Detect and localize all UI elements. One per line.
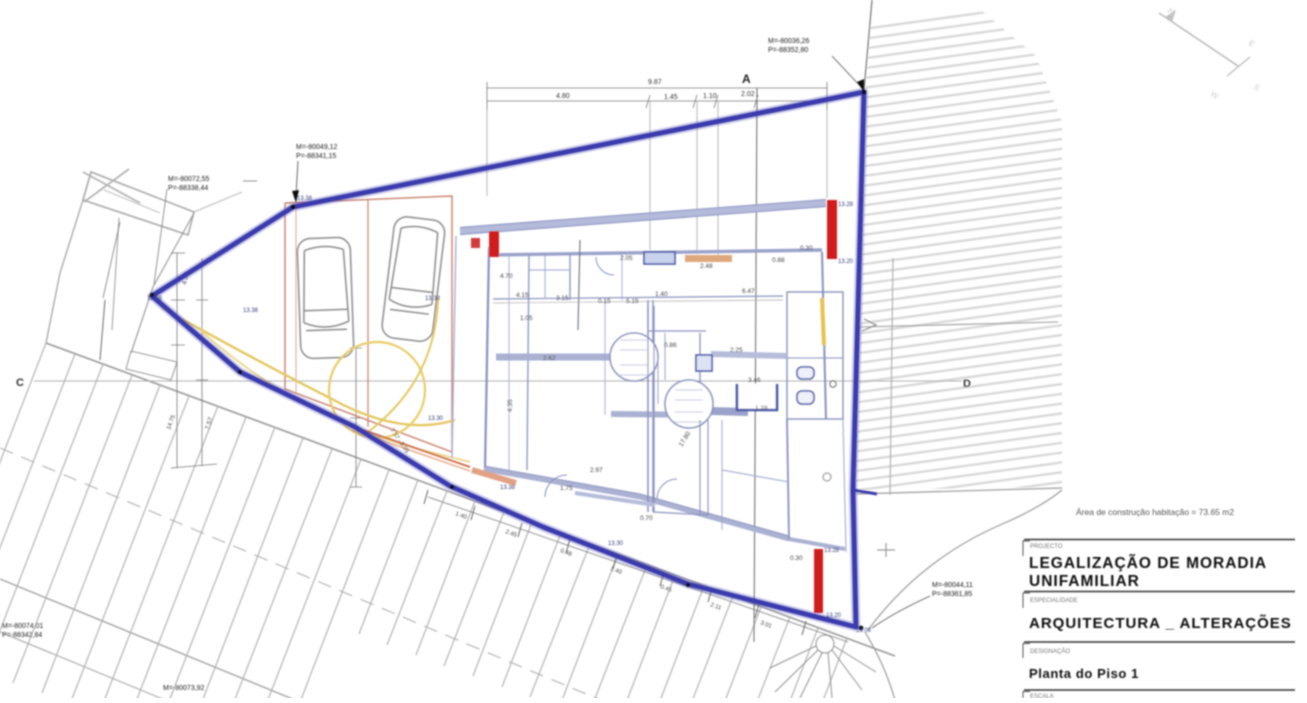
svg-text:M=-80036,26: M=-80036,26 bbox=[768, 38, 810, 45]
svg-text:13.30: 13.30 bbox=[428, 416, 444, 422]
svg-text:0.88: 0.88 bbox=[772, 257, 785, 264]
svg-text:UNIFAMILIAR: UNIFAMILIAR bbox=[1029, 573, 1140, 590]
svg-text:2.97: 2.97 bbox=[590, 467, 603, 474]
svg-text:1.75: 1.75 bbox=[560, 485, 573, 492]
svg-text:6.47: 6.47 bbox=[742, 288, 755, 295]
svg-text:A: A bbox=[742, 72, 751, 86]
svg-text:2.02: 2.02 bbox=[741, 91, 755, 98]
svg-text:0.86: 0.86 bbox=[664, 342, 677, 349]
svg-text:0.30: 0.30 bbox=[800, 245, 813, 252]
svg-text:0.15: 0.15 bbox=[598, 298, 611, 305]
svg-text:13.08: 13.08 bbox=[856, 628, 872, 634]
svg-text:ESCALA: ESCALA bbox=[1030, 694, 1054, 698]
svg-text:13.20: 13.20 bbox=[826, 613, 842, 619]
svg-text:3.46: 3.46 bbox=[748, 377, 761, 384]
svg-text:P=-88361,85: P=-88361,85 bbox=[932, 591, 972, 598]
svg-text:2.62: 2.62 bbox=[543, 355, 556, 362]
svg-text:1.45: 1.45 bbox=[664, 94, 678, 101]
svg-text:3.15: 3.15 bbox=[556, 295, 569, 302]
svg-text:13.28: 13.28 bbox=[838, 202, 854, 208]
svg-text:DESIGNAÇÃO: DESIGNAÇÃO bbox=[1030, 648, 1070, 655]
svg-text:P=-88338,44: P=-88338,44 bbox=[168, 185, 208, 192]
svg-text:Área de construção habitação: Área de construção habitação = 73.65 m2 bbox=[1076, 507, 1234, 517]
svg-text:1.28: 1.28 bbox=[755, 405, 768, 412]
svg-text:LEGALIZAÇÃO DE MORADIA: LEGALIZAÇÃO DE MORADIA bbox=[1029, 554, 1267, 572]
svg-text:D: D bbox=[963, 378, 971, 390]
svg-text:13.28: 13.28 bbox=[824, 548, 840, 554]
svg-text:5.15: 5.15 bbox=[626, 298, 639, 305]
svg-text:13.20: 13.20 bbox=[838, 259, 854, 265]
svg-text:13.08: 13.08 bbox=[147, 296, 163, 302]
svg-text:M=-80073,92: M=-80073,92 bbox=[163, 685, 205, 692]
svg-text:Planta do Piso 1: Planta do Piso 1 bbox=[1029, 666, 1139, 681]
svg-text:ARQUITECTURA _ ALTERAÇÕES: ARQUITECTURA _ ALTERAÇÕES bbox=[1029, 614, 1292, 632]
svg-text:1.05: 1.05 bbox=[520, 315, 533, 322]
svg-text:1.10: 1.10 bbox=[703, 93, 717, 100]
svg-text:4.15: 4.15 bbox=[516, 292, 529, 299]
svg-text:C: C bbox=[16, 377, 24, 389]
svg-text:0.70: 0.70 bbox=[640, 515, 653, 522]
svg-text:13.38: 13.38 bbox=[297, 196, 313, 202]
svg-text:9.87: 9.87 bbox=[648, 79, 662, 86]
svg-text:PROJECTO: PROJECTO bbox=[1030, 544, 1063, 550]
svg-text:M=-80072,55: M=-80072,55 bbox=[168, 176, 210, 183]
svg-text:M=-80044,11: M=-80044,11 bbox=[932, 582, 973, 589]
svg-text:13.38: 13.38 bbox=[243, 308, 259, 314]
svg-text:M=-80074,01: M=-80074,01 bbox=[2, 623, 44, 630]
svg-text:M=-80049,12: M=-80049,12 bbox=[296, 144, 338, 151]
svg-text:ESPECIALIDADE: ESPECIALIDADE bbox=[1030, 598, 1078, 604]
svg-text:0.30: 0.30 bbox=[790, 555, 803, 562]
svg-text:P=-88352,80: P=-88352,80 bbox=[768, 47, 808, 54]
svg-text:4.80: 4.80 bbox=[556, 93, 570, 100]
svg-text:P=-88342,84: P=-88342,84 bbox=[2, 632, 42, 639]
svg-text:P=-88341,15: P=-88341,15 bbox=[296, 153, 336, 160]
svg-text:2.48: 2.48 bbox=[700, 263, 713, 270]
svg-text:2.25: 2.25 bbox=[730, 347, 743, 354]
svg-text:13.38: 13.38 bbox=[500, 485, 516, 491]
svg-text:1.40: 1.40 bbox=[655, 291, 668, 298]
svg-text:13.38: 13.38 bbox=[425, 296, 441, 302]
svg-text:4.70: 4.70 bbox=[500, 273, 513, 280]
svg-text:4.35: 4.35 bbox=[507, 399, 514, 412]
svg-text:13.30: 13.30 bbox=[608, 541, 624, 547]
svg-text:2.05: 2.05 bbox=[620, 255, 633, 262]
